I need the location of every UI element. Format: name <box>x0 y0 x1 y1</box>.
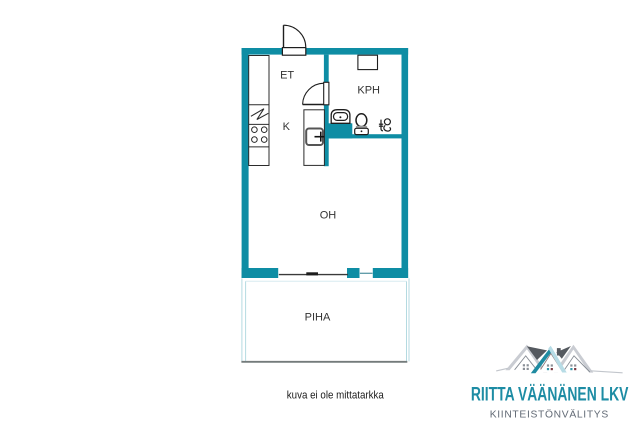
svg-text:PIHA: PIHA <box>305 312 331 324</box>
svg-text:KIINTEISTÖNVÄLITYS: KIINTEISTÖNVÄLITYS <box>490 409 609 421</box>
svg-text:KPH: KPH <box>357 85 380 97</box>
svg-text:kuva ei ole mittatarkka: kuva ei ole mittatarkka <box>287 389 384 401</box>
svg-text:RIITTA VÄÄNÄNEN LKV: RIITTA VÄÄNÄNEN LKV <box>471 385 629 406</box>
svg-text:OH: OH <box>320 209 337 221</box>
svg-text:ET: ET <box>280 69 294 81</box>
svg-text:K: K <box>283 121 291 133</box>
